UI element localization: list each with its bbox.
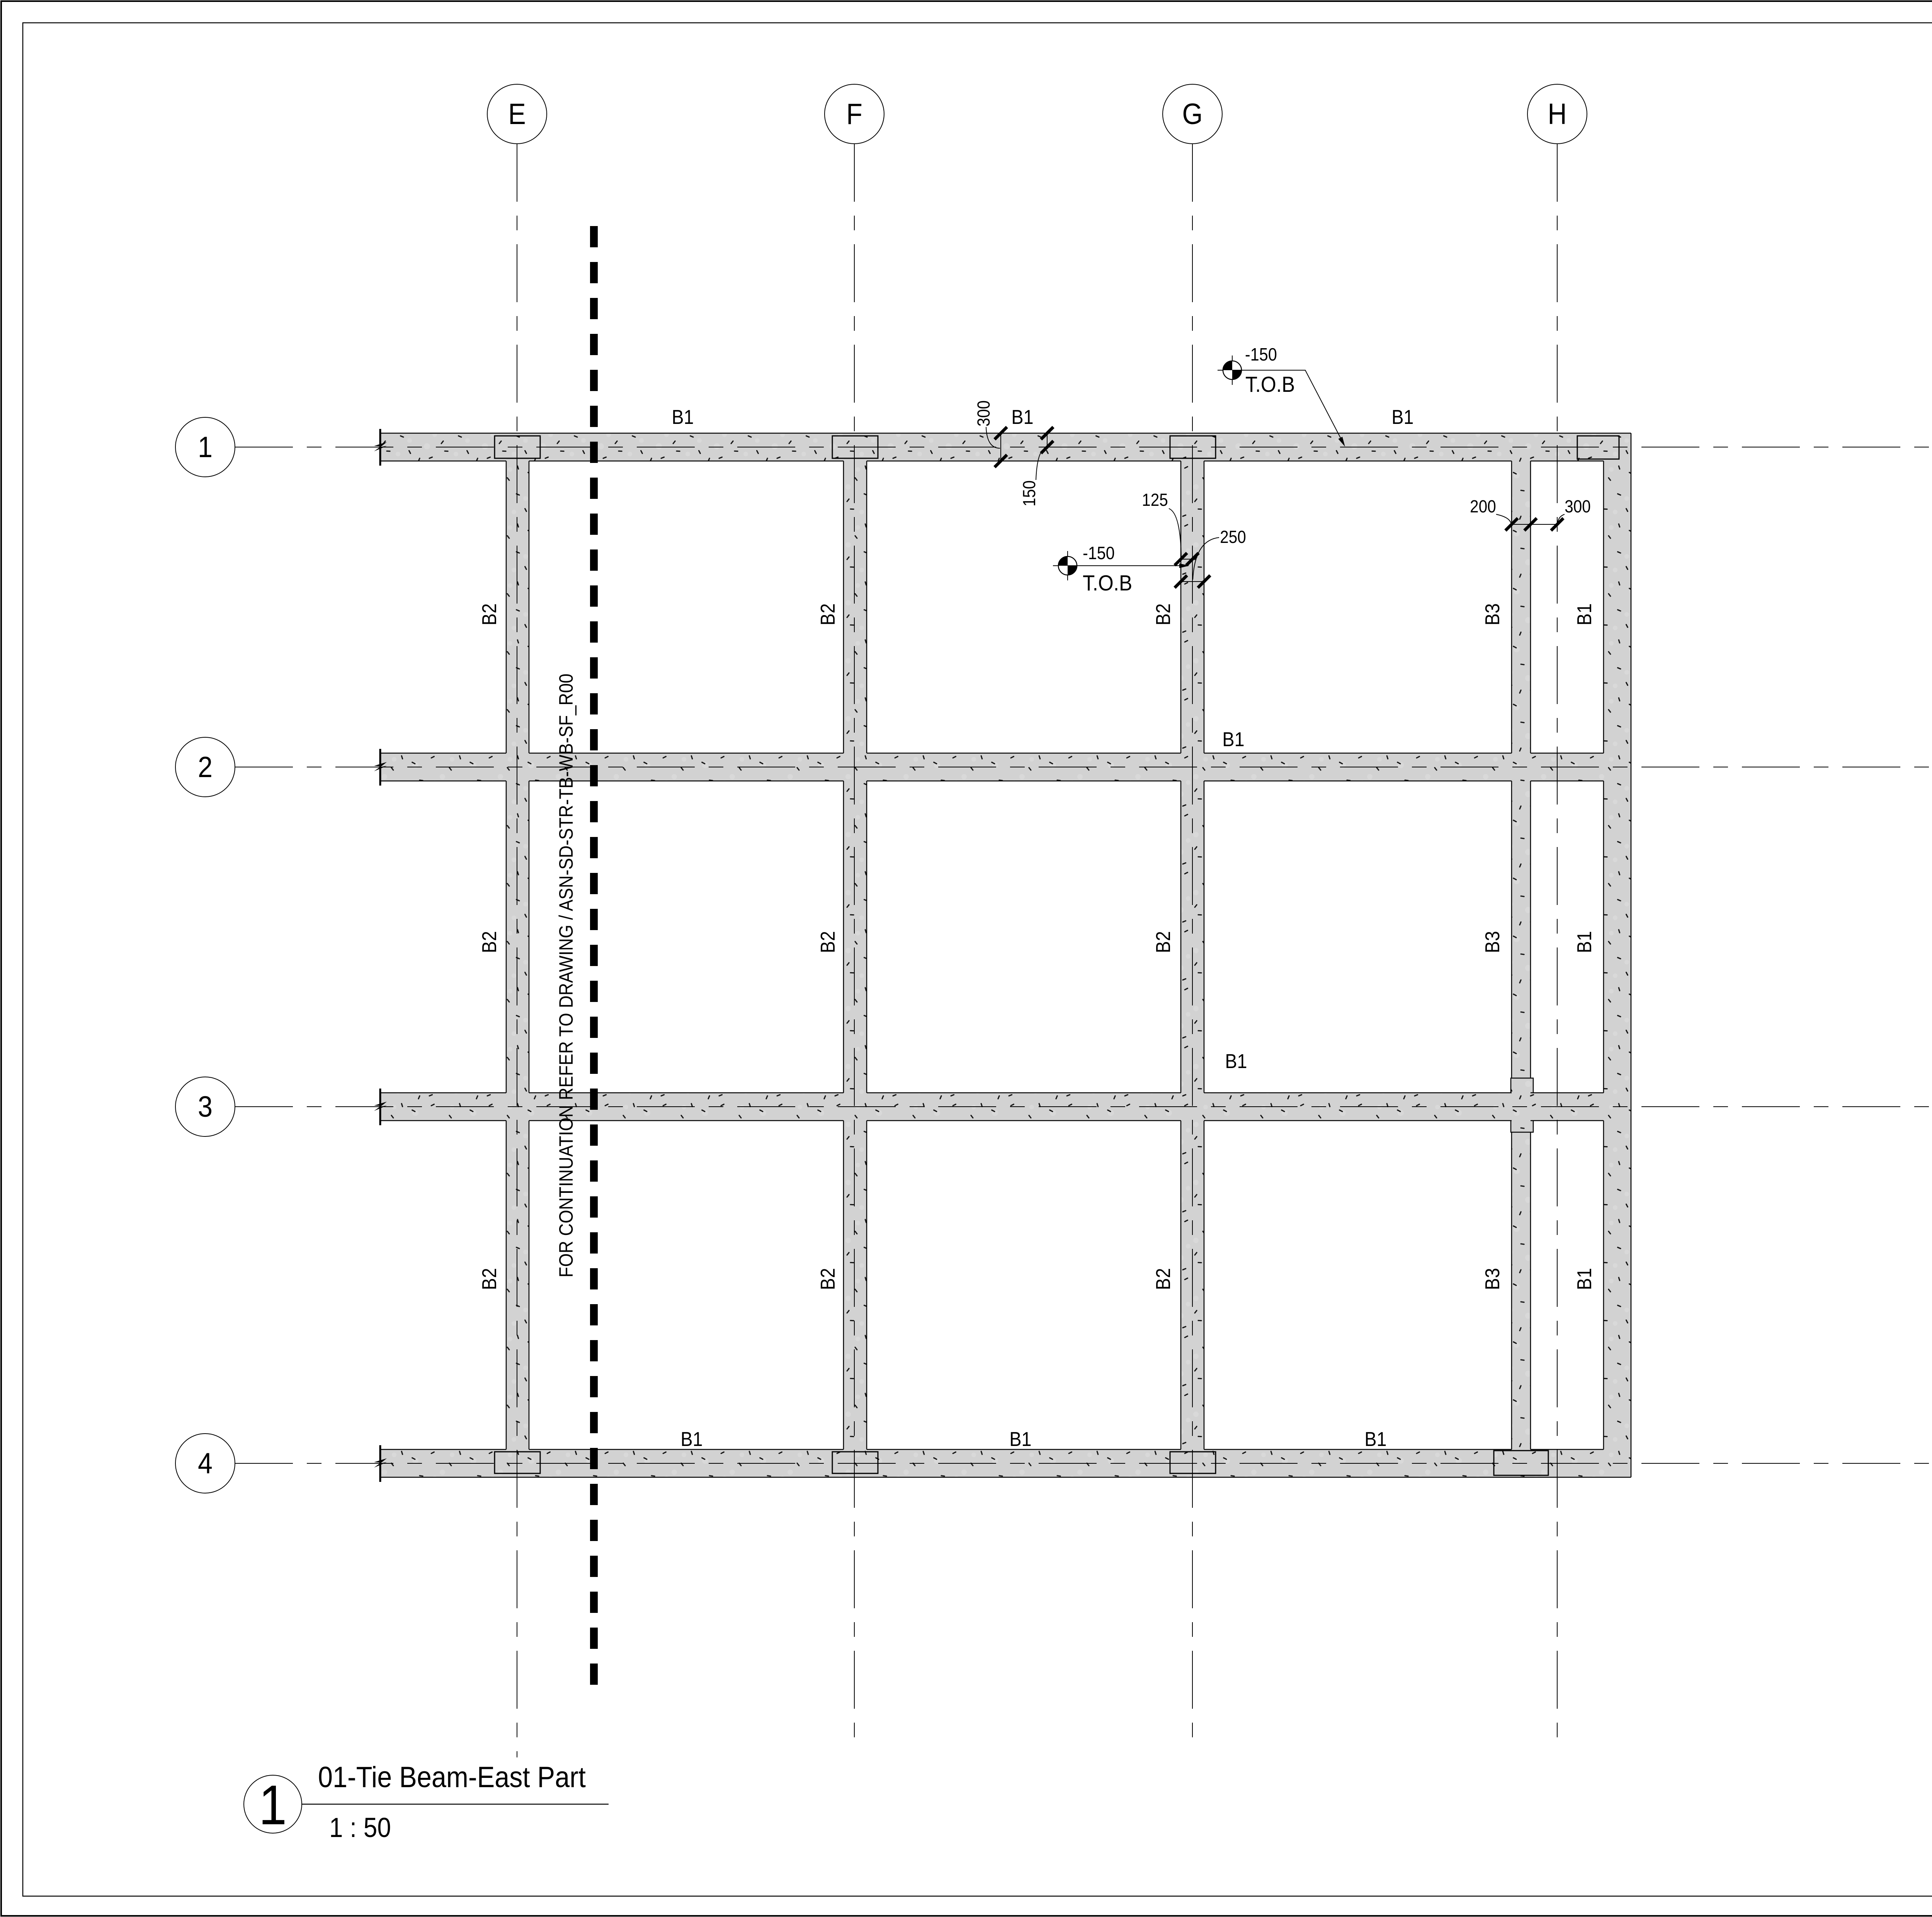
svg-text:B1: B1 (1573, 1268, 1596, 1290)
svg-text:B2: B2 (478, 603, 501, 625)
svg-text:B2: B2 (478, 931, 501, 953)
svg-text:B1: B1 (1222, 728, 1244, 751)
svg-text:B2: B2 (1152, 1268, 1175, 1290)
svg-text:T.O.B: T.O.B (1083, 571, 1132, 595)
svg-text:2: 2 (198, 751, 213, 784)
svg-text:B2: B2 (817, 1268, 839, 1290)
svg-text:B1: B1 (1364, 1428, 1386, 1451)
svg-text:150: 150 (1020, 480, 1039, 507)
svg-text:G: G (1182, 98, 1202, 131)
svg-text:125: 125 (1142, 490, 1168, 510)
svg-text:B2: B2 (478, 1268, 501, 1290)
svg-text:200: 200 (1470, 497, 1496, 516)
svg-text:B1: B1 (1225, 1050, 1247, 1073)
svg-text:01-Tie Beam-East Part: 01-Tie Beam-East Part (318, 1761, 586, 1794)
svg-text:250: 250 (1220, 527, 1246, 547)
svg-text:B1: B1 (680, 1428, 702, 1451)
svg-text:300: 300 (1565, 497, 1591, 516)
svg-text:FOR CONTINUATION REFER TO DRAW: FOR CONTINUATION REFER TO DRAWING / ASN-… (556, 674, 577, 1277)
svg-text:B2: B2 (817, 603, 839, 625)
svg-text:B3: B3 (1481, 931, 1504, 953)
svg-text:1 : 50: 1 : 50 (329, 1813, 391, 1843)
svg-text:-150: -150 (1245, 345, 1277, 365)
svg-text:E: E (508, 98, 526, 131)
svg-text:F: F (846, 98, 862, 131)
svg-text:B1: B1 (1391, 406, 1413, 429)
svg-text:1: 1 (198, 431, 213, 464)
svg-text:B1: B1 (1573, 603, 1596, 625)
svg-text:B3: B3 (1481, 603, 1504, 625)
svg-text:H: H (1548, 98, 1566, 131)
svg-text:300: 300 (974, 400, 993, 427)
svg-text:1: 1 (259, 1774, 287, 1837)
svg-text:B1: B1 (1573, 931, 1596, 953)
svg-text:B1: B1 (672, 406, 694, 429)
svg-text:B2: B2 (1152, 931, 1175, 953)
svg-text:3: 3 (198, 1091, 213, 1123)
svg-text:T.O.B: T.O.B (1245, 373, 1295, 397)
svg-text:B1: B1 (1011, 406, 1033, 429)
svg-text:4: 4 (198, 1448, 213, 1480)
svg-text:-150: -150 (1083, 543, 1115, 563)
svg-text:B2: B2 (817, 931, 839, 953)
svg-text:B3: B3 (1481, 1268, 1504, 1290)
svg-text:B1: B1 (1009, 1428, 1031, 1451)
svg-text:B2: B2 (1152, 603, 1175, 625)
